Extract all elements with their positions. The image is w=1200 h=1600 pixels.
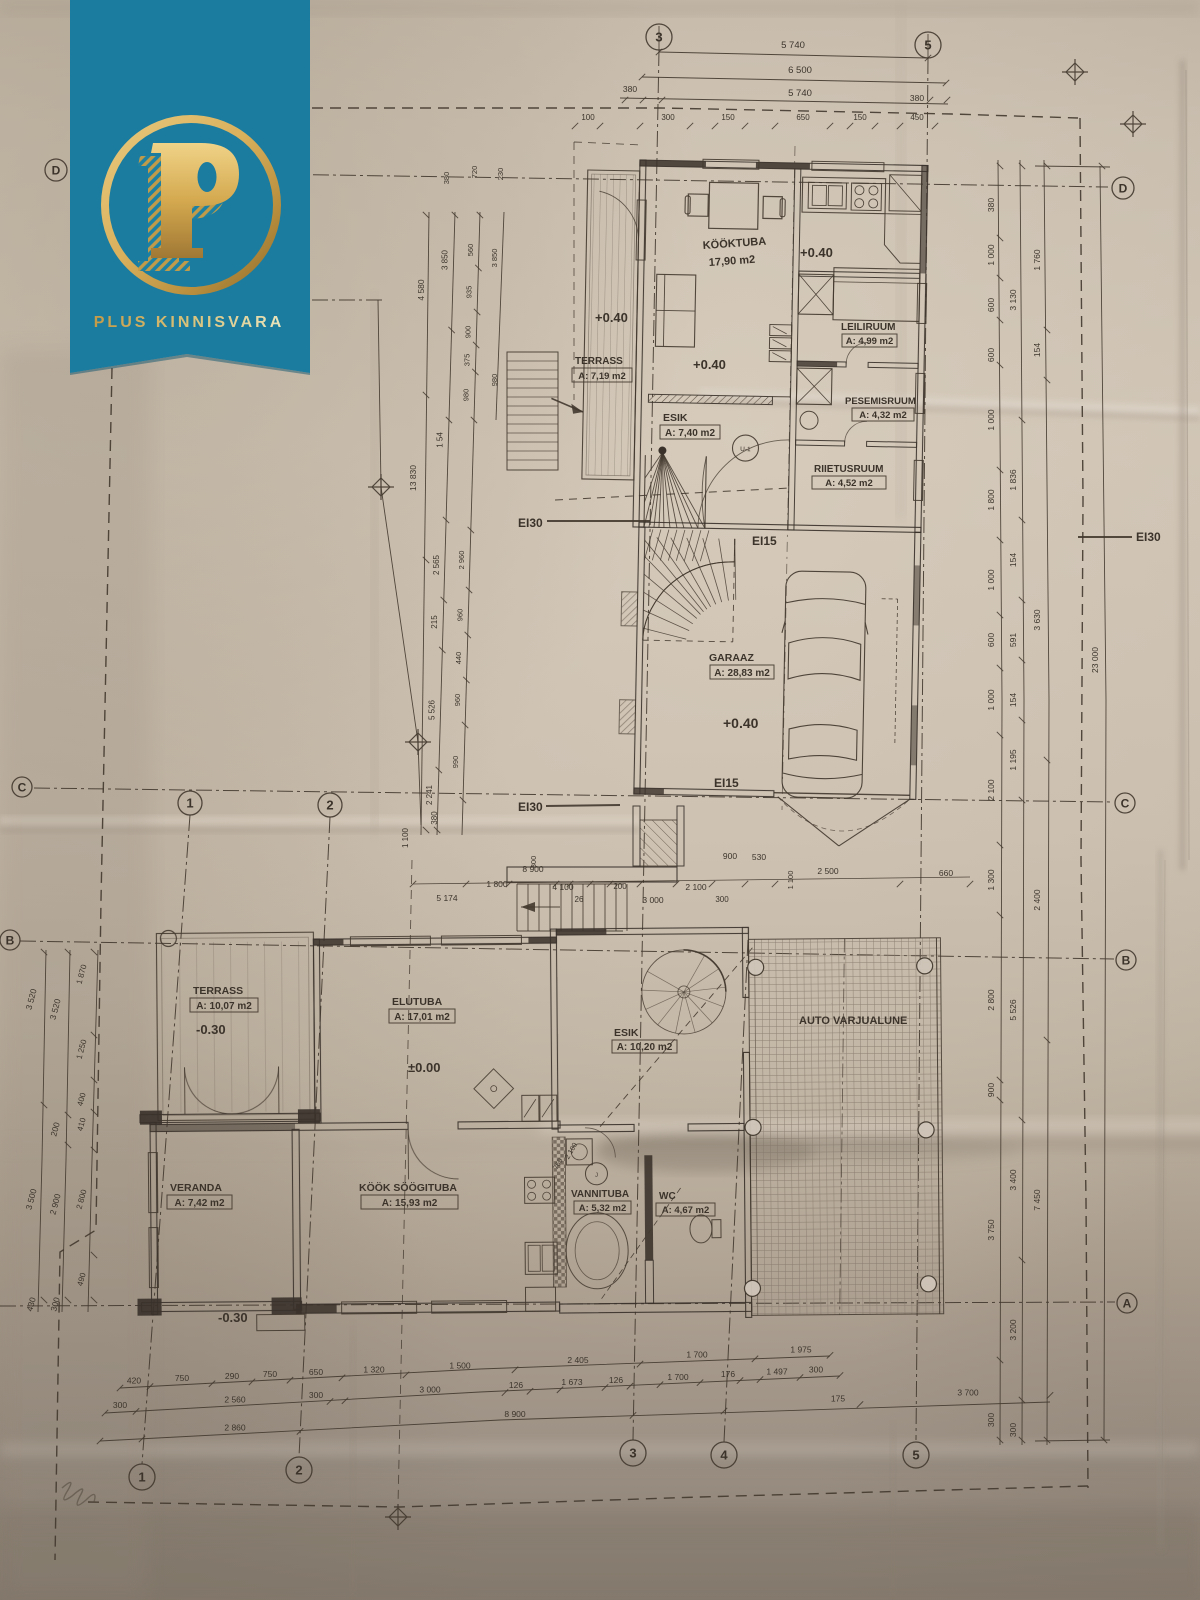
svg-text:A: 4,32 m2: A: 4,32 m2: [859, 410, 907, 421]
svg-text:150: 150: [853, 113, 867, 122]
svg-text:600: 600: [986, 348, 996, 362]
svg-text:126: 126: [509, 1380, 523, 1390]
svg-text:980: 980: [462, 389, 471, 402]
svg-text:1 836: 1 836: [1008, 469, 1018, 491]
svg-text:+0.40: +0.40: [723, 715, 759, 731]
svg-text:2 500: 2 500: [817, 866, 839, 876]
svg-text:650: 650: [796, 113, 810, 122]
svg-text:1 54: 1 54: [435, 432, 444, 448]
svg-text:J: J: [595, 1173, 598, 1179]
svg-text:3 750: 3 750: [986, 1219, 996, 1241]
svg-text:1 497: 1 497: [766, 1367, 788, 1377]
svg-text:A: 4,99 m2: A: 4,99 m2: [846, 336, 894, 347]
svg-text:1 673: 1 673: [561, 1377, 583, 1387]
svg-text:1 100: 1 100: [401, 827, 410, 848]
svg-text:3 400: 3 400: [1008, 1169, 1018, 1191]
svg-text:176: 176: [721, 1369, 735, 1379]
svg-text:C: C: [18, 780, 27, 794]
svg-text:200: 200: [613, 882, 627, 891]
svg-text:300: 300: [986, 1413, 996, 1427]
svg-text:1 320: 1 320: [363, 1364, 385, 1374]
svg-text:660: 660: [939, 868, 953, 878]
svg-text:150: 150: [721, 113, 735, 122]
svg-text:154: 154: [1032, 343, 1042, 357]
svg-text:A: A: [1123, 1296, 1132, 1310]
svg-text:D: D: [52, 163, 61, 177]
svg-text:154: 154: [1008, 693, 1018, 707]
svg-text:960: 960: [455, 609, 464, 622]
svg-text:PESEMISRUUM: PESEMISRUUM: [845, 396, 916, 407]
svg-text:215: 215: [430, 615, 439, 629]
svg-text:980: 980: [490, 374, 499, 387]
svg-text:3 000: 3 000: [642, 895, 664, 905]
svg-text:2 800: 2 800: [986, 989, 996, 1011]
svg-text:A: 28,83 m2: A: 28,83 m2: [714, 668, 770, 679]
svg-text:380: 380: [430, 811, 439, 825]
svg-text:4 580: 4 580: [416, 279, 426, 301]
svg-text:420: 420: [127, 1375, 141, 1385]
svg-text:300: 300: [113, 1400, 127, 1410]
svg-text:5 740: 5 740: [781, 40, 805, 51]
svg-text:A: 5,32 m2: A: 5,32 m2: [579, 1203, 627, 1214]
svg-text:1 100: 1 100: [786, 871, 795, 890]
svg-text:960: 960: [453, 694, 462, 707]
svg-text:750: 750: [175, 1373, 189, 1383]
svg-text:A: 4,52 m2: A: 4,52 m2: [825, 478, 873, 489]
svg-text:B: B: [6, 933, 15, 947]
svg-text:3 630: 3 630: [1032, 609, 1042, 631]
svg-text:1 760: 1 760: [1032, 249, 1042, 271]
svg-text:23 000: 23 000: [1090, 647, 1100, 673]
svg-text:1 000: 1 000: [986, 569, 996, 591]
svg-text:3 850: 3 850: [441, 249, 450, 270]
svg-text:450: 450: [910, 113, 924, 122]
svg-text:3 850: 3 850: [490, 249, 499, 268]
svg-text:1 300: 1 300: [986, 869, 996, 891]
svg-text:+0.40: +0.40: [693, 357, 726, 372]
svg-text:591: 591: [1008, 633, 1018, 647]
svg-text:100: 100: [581, 113, 595, 122]
svg-text:300: 300: [715, 895, 729, 904]
svg-text:300: 300: [309, 1390, 323, 1400]
svg-text:600: 600: [986, 298, 996, 312]
svg-text:TERRASS: TERRASS: [575, 356, 623, 367]
svg-text:650: 650: [309, 1367, 323, 1377]
svg-text:5 740: 5 740: [788, 88, 812, 99]
svg-text:EI15: EI15: [714, 776, 739, 790]
svg-text:300: 300: [529, 856, 538, 869]
svg-text:7 450: 7 450: [1032, 1189, 1042, 1211]
svg-text:6 500: 6 500: [788, 65, 812, 76]
svg-text:2 565: 2 565: [432, 554, 441, 575]
svg-text:EI30: EI30: [518, 800, 543, 814]
svg-text:2 860: 2 860: [224, 1423, 246, 1433]
svg-text:154: 154: [1008, 553, 1018, 567]
svg-text:13 830: 13 830: [408, 465, 418, 491]
svg-text:ESIK: ESIK: [663, 412, 688, 424]
svg-text:PLUS KINNISVARA: PLUS KINNISVARA: [94, 314, 285, 331]
svg-text:5: 5: [912, 1448, 919, 1463]
svg-text:375: 375: [463, 354, 472, 367]
svg-text:2: 2: [326, 798, 333, 813]
svg-text:KÖÖK SÖÖGITUBA: KÖÖK SÖÖGITUBA: [359, 1181, 457, 1194]
svg-text:A: 10,07 m2: A: 10,07 m2: [196, 1001, 252, 1012]
svg-text:440: 440: [454, 652, 463, 665]
svg-text:D: D: [1119, 181, 1128, 195]
svg-text:TERRASS: TERRASS: [193, 985, 243, 997]
svg-text:2 405: 2 405: [567, 1355, 589, 1365]
svg-text:300: 300: [661, 113, 675, 122]
svg-text:B: B: [1122, 953, 1131, 967]
svg-text:300: 300: [1008, 1423, 1018, 1437]
svg-text:1 195: 1 195: [1008, 749, 1018, 771]
svg-text:990: 990: [451, 756, 460, 769]
svg-text:900: 900: [464, 326, 473, 339]
svg-text:1 700: 1 700: [667, 1372, 689, 1382]
svg-text:1 500: 1 500: [449, 1360, 471, 1370]
svg-text:+0.40: +0.40: [800, 245, 833, 260]
svg-text:126: 126: [609, 1375, 623, 1385]
svg-text:VERANDA: VERANDA: [170, 1182, 222, 1194]
svg-text:5 526: 5 526: [428, 699, 437, 720]
svg-text:8 900: 8 900: [504, 1409, 526, 1419]
svg-text:1 800: 1 800: [986, 489, 996, 511]
svg-text:3: 3: [629, 1446, 636, 1461]
svg-text:560: 560: [466, 244, 475, 257]
svg-text:720: 720: [470, 166, 479, 179]
svg-text:935: 935: [465, 286, 474, 299]
svg-text:GARAAZ: GARAAZ: [709, 652, 754, 664]
svg-text:1 000: 1 000: [986, 689, 996, 711]
svg-text:1: 1: [138, 1470, 145, 1485]
svg-text:900: 900: [723, 851, 737, 861]
svg-text:600: 600: [986, 633, 996, 647]
svg-text:2 100: 2 100: [685, 882, 707, 892]
svg-text:2: 2: [295, 1463, 302, 1478]
svg-text:5 526: 5 526: [1008, 999, 1018, 1021]
svg-text:1 975: 1 975: [790, 1345, 812, 1355]
svg-text:A: 17,01 m2: A: 17,01 m2: [394, 1012, 450, 1023]
svg-text:EI15: EI15: [752, 534, 777, 548]
svg-text:300: 300: [809, 1365, 823, 1375]
svg-text:4: 4: [720, 1448, 728, 1463]
svg-text:3 700: 3 700: [957, 1387, 979, 1397]
svg-text:±0.00: ±0.00: [408, 1060, 440, 1075]
svg-text:LEILIRUUM: LEILIRUUM: [841, 322, 895, 333]
svg-text:750: 750: [263, 1369, 277, 1379]
svg-text:1: 1: [186, 796, 193, 811]
svg-text:A: 4,67 m2: A: 4,67 m2: [662, 1205, 710, 1216]
svg-text:ELUTUBA: ELUTUBA: [392, 996, 443, 1008]
svg-text:26: 26: [575, 895, 584, 904]
svg-text:5 174: 5 174: [436, 893, 458, 903]
svg-text:VANNITUBA: VANNITUBA: [571, 1189, 629, 1200]
svg-text:A: 7,42 m2: A: 7,42 m2: [174, 1198, 224, 1209]
svg-text:380: 380: [623, 84, 637, 94]
svg-text:1 700: 1 700: [686, 1349, 708, 1359]
svg-text:2 960: 2 960: [457, 551, 466, 570]
svg-text:900: 900: [986, 1083, 996, 1097]
svg-text:+0.40: +0.40: [595, 310, 628, 325]
svg-text:-0.30: -0.30: [218, 1310, 248, 1325]
svg-text:EI30: EI30: [1136, 530, 1161, 544]
svg-text:175: 175: [831, 1394, 845, 1404]
svg-text:2 560: 2 560: [224, 1394, 246, 1404]
svg-text:A: 15,93 m2: A: 15,93 m2: [382, 1198, 438, 1209]
svg-text:2 241: 2 241: [425, 784, 434, 805]
svg-text:C: C: [1121, 796, 1130, 810]
svg-text:380: 380: [986, 198, 996, 212]
svg-text:3 000: 3 000: [419, 1384, 441, 1394]
svg-text:2 400: 2 400: [1032, 889, 1042, 911]
svg-text:1 800: 1 800: [486, 879, 508, 889]
svg-text:ESIK: ESIK: [614, 1027, 639, 1039]
svg-text:290: 290: [225, 1371, 239, 1381]
svg-text:3 200: 3 200: [1008, 1319, 1018, 1341]
svg-text:WC: WC: [659, 1191, 676, 1202]
svg-text:RIIETUSRUUM: RIIETUSRUUM: [814, 464, 883, 475]
svg-text:3 130: 3 130: [1008, 289, 1018, 311]
svg-text:EI30: EI30: [518, 516, 543, 530]
svg-text:2 100: 2 100: [986, 779, 996, 801]
svg-text:1 000: 1 000: [986, 409, 996, 431]
svg-text:1 000: 1 000: [986, 244, 996, 266]
svg-text:380: 380: [910, 93, 924, 103]
svg-text:230: 230: [496, 168, 505, 181]
svg-text:AUTO VARJUALUNE: AUTO VARJUALUNE: [799, 1015, 907, 1027]
svg-text:-0.30: -0.30: [196, 1022, 226, 1037]
svg-text:530: 530: [752, 852, 766, 862]
svg-text:A: 7,40 m2: A: 7,40 m2: [665, 428, 715, 439]
svg-text:A: 10,20 m2: A: 10,20 m2: [617, 1042, 673, 1053]
svg-text:A: 7,19 m2: A: 7,19 m2: [578, 371, 626, 382]
svg-text:380: 380: [442, 172, 451, 185]
svg-text:U-1: U-1: [740, 446, 751, 453]
